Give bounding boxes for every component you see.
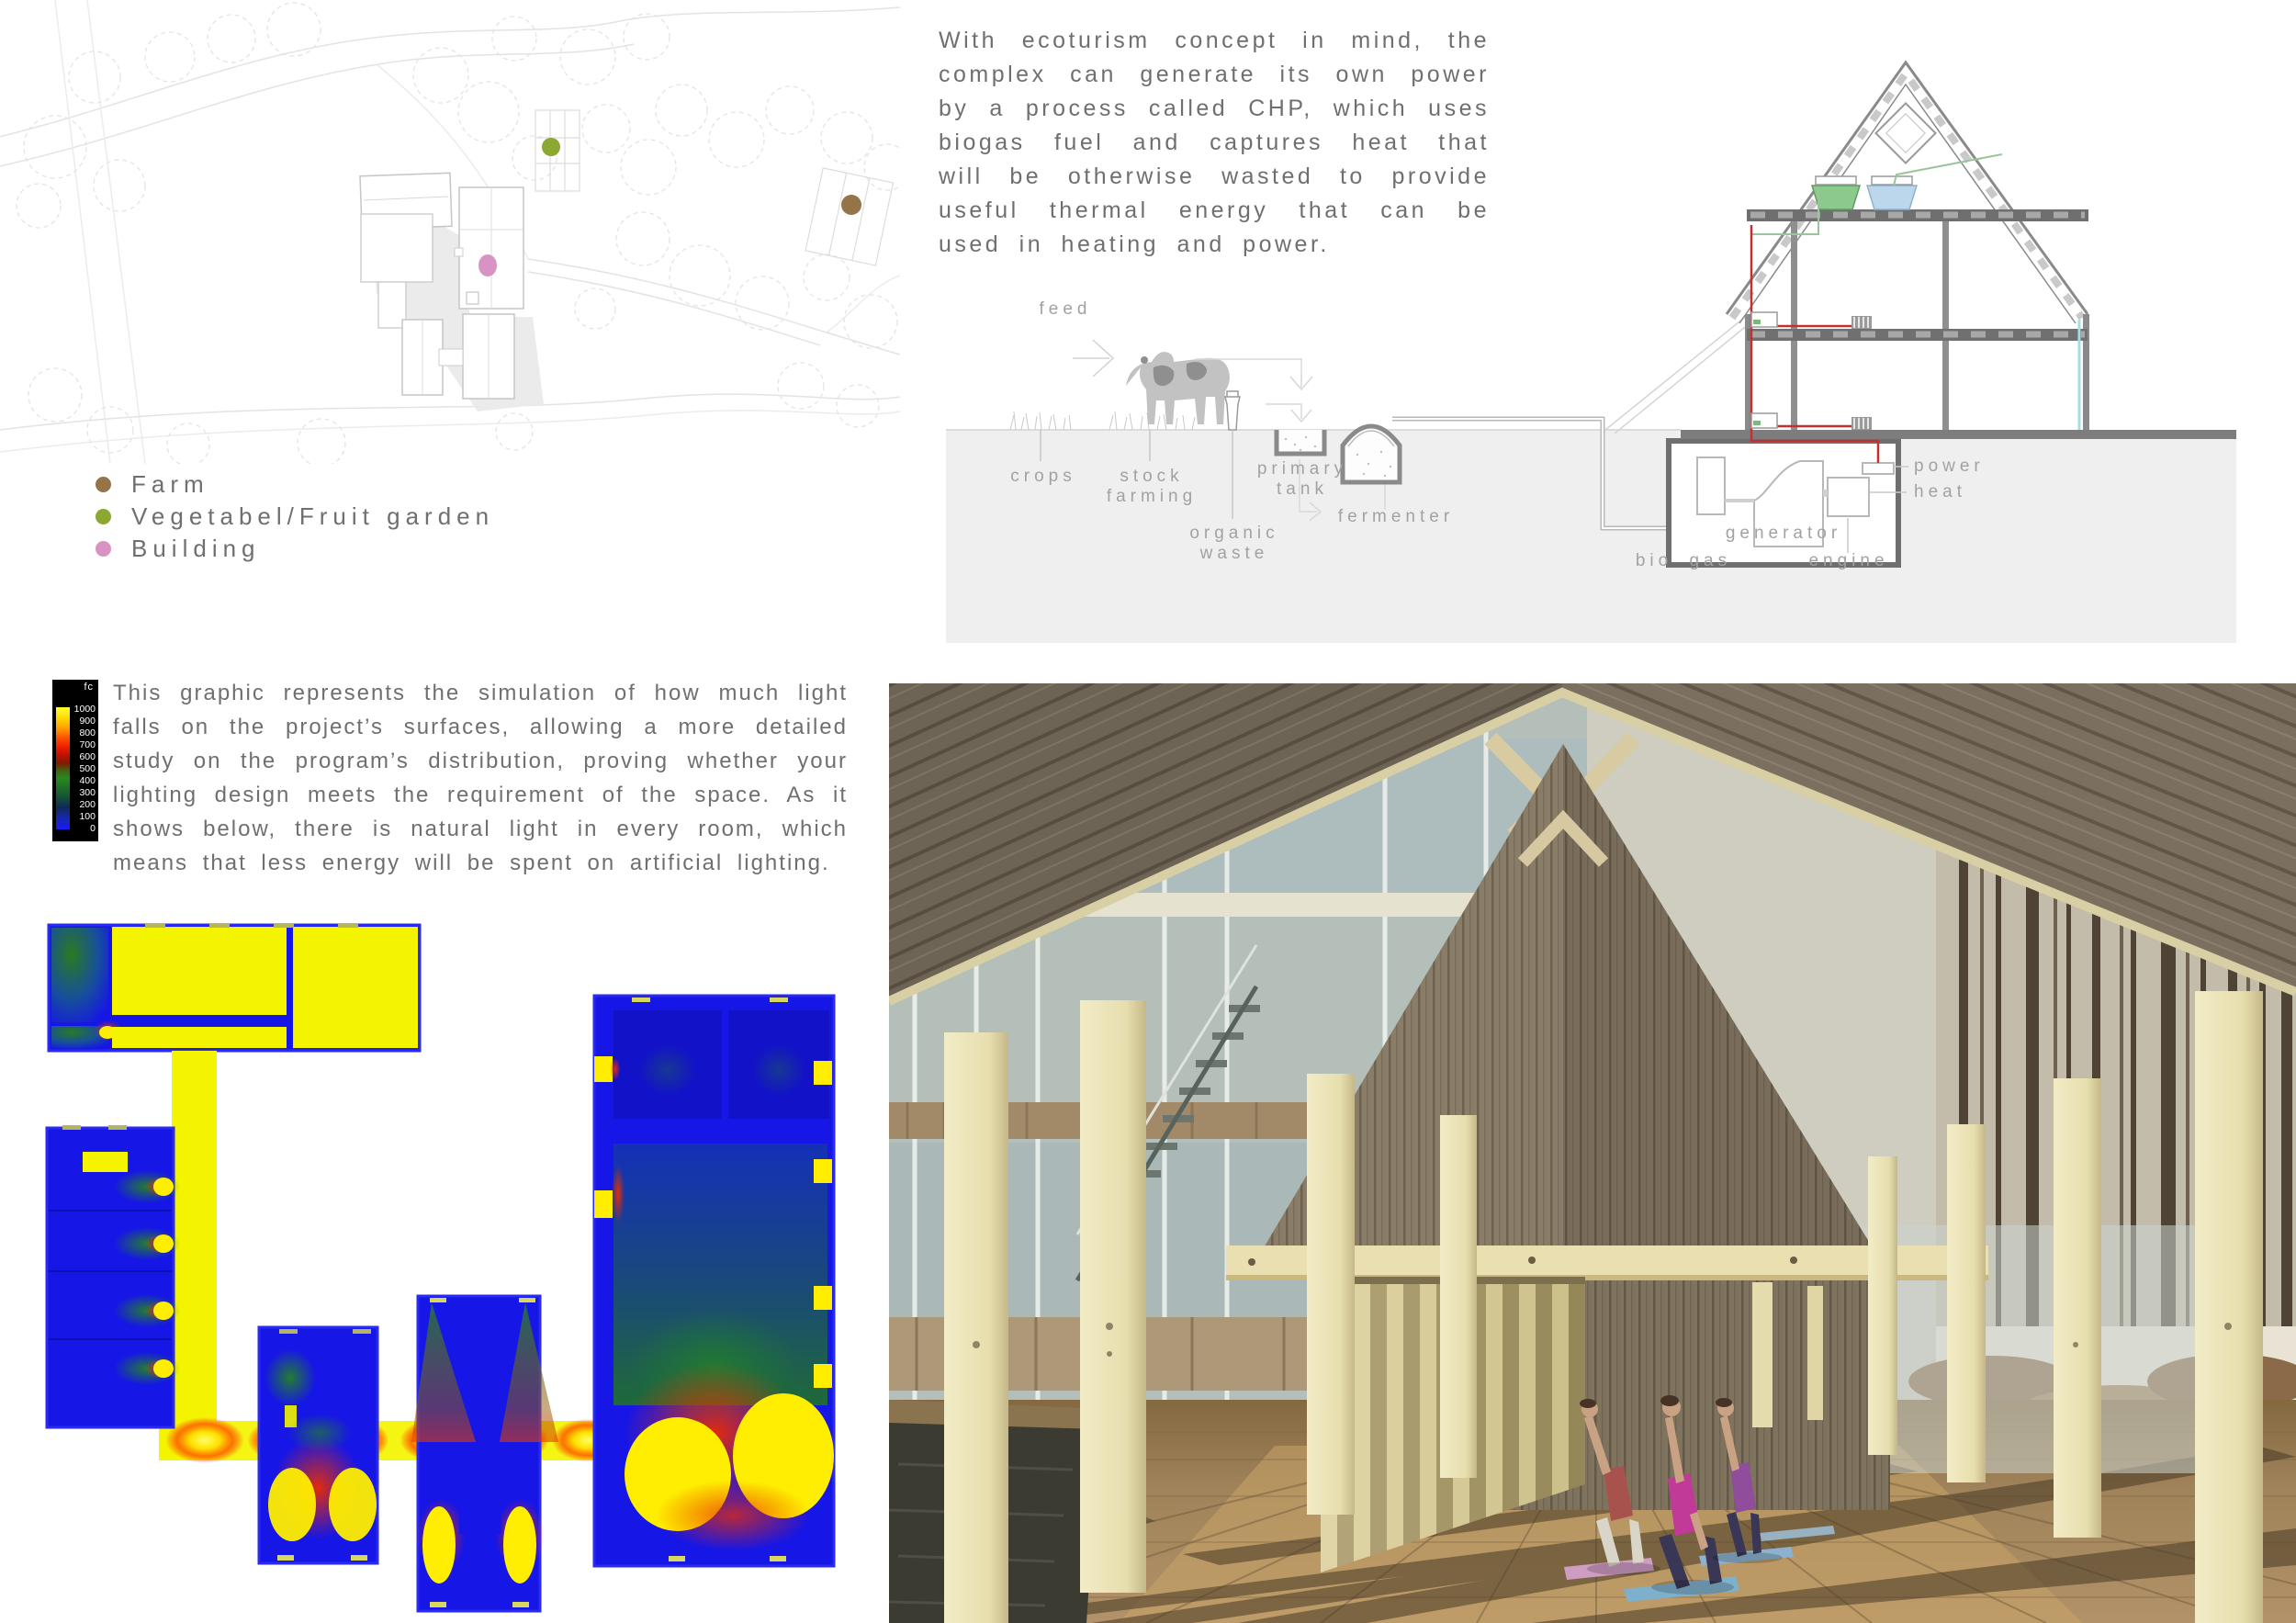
legend-row-garden: Vegetabel/Fruit garden bbox=[96, 501, 494, 533]
lean-to-glass bbox=[1605, 314, 1754, 434]
label-fermenter: fermenter bbox=[1338, 507, 1454, 527]
primary-tank-shape bbox=[1277, 430, 1324, 454]
timber-column bbox=[1440, 1115, 1477, 1478]
building-marker bbox=[478, 254, 497, 276]
building-dot-icon bbox=[96, 541, 111, 557]
timber-column bbox=[1807, 1286, 1823, 1420]
pavilion-render bbox=[889, 683, 2296, 1623]
label-engine: engine bbox=[1808, 551, 1888, 571]
site-buildings bbox=[360, 173, 544, 411]
basement bbox=[1669, 441, 1908, 565]
bio-gas-storage bbox=[1697, 457, 1725, 514]
heatmap-left-block bbox=[47, 1125, 195, 1427]
label-bio-gas: bio gas bbox=[1636, 551, 1731, 571]
timber-column bbox=[1307, 1074, 1355, 1515]
scale-tick: 100 bbox=[68, 812, 96, 821]
timber-column bbox=[2195, 991, 2263, 1623]
scale-tick: 700 bbox=[68, 740, 96, 750]
farm-dot-icon bbox=[96, 477, 111, 492]
engine-shape bbox=[1828, 478, 1869, 516]
chp-diagram-drawing bbox=[946, 37, 2241, 643]
power-unit-shape bbox=[1863, 463, 1894, 474]
presentation-board: Farm Vegetabel/Fruit garden Building Wit… bbox=[0, 0, 2296, 1623]
timber-column bbox=[944, 1032, 1008, 1623]
timber-column bbox=[1752, 1282, 1773, 1427]
legend-row-farm: Farm bbox=[96, 468, 494, 501]
scale-tick: 0 bbox=[68, 824, 96, 833]
scale-tick: 1000 bbox=[68, 704, 96, 714]
timber-column bbox=[1868, 1156, 1897, 1455]
site-plan-drawing bbox=[0, 0, 900, 464]
interior-column bbox=[1942, 220, 1949, 430]
organic-waste-bin bbox=[1225, 391, 1240, 430]
heatmap-third-block bbox=[406, 1296, 558, 1611]
heatmap-middle-block bbox=[253, 1327, 382, 1563]
label-feed: feed bbox=[1040, 299, 1092, 320]
footcandle-scale: fc 1000 900 800 700 600 500 400 300 200 … bbox=[52, 680, 98, 841]
site-plan-legend: Farm Vegetabel/Fruit garden Building bbox=[96, 468, 494, 565]
label-primary-tank: primary tank bbox=[1233, 459, 1371, 500]
garden-marker bbox=[542, 138, 560, 156]
legend-row-building: Building bbox=[96, 533, 494, 565]
timber-column bbox=[1947, 1124, 1986, 1482]
heatmap-top-block bbox=[49, 923, 420, 1051]
scale-tick: 300 bbox=[68, 788, 96, 797]
scale-tick: 900 bbox=[68, 716, 96, 726]
label-organic-waste: organic waste bbox=[1165, 524, 1303, 564]
scale-tick: 800 bbox=[68, 728, 96, 738]
legend-label: Vegetabel/Fruit garden bbox=[131, 502, 494, 531]
lighting-paragraph: This graphic represents the simulation o… bbox=[113, 676, 848, 880]
timber-column bbox=[1080, 1000, 1146, 1593]
blue-water-tank bbox=[1867, 186, 1917, 209]
feed-arrow-icon bbox=[1073, 340, 1113, 377]
label-heat: heat bbox=[1914, 482, 1966, 502]
label-crops: crops bbox=[1010, 467, 1075, 487]
scale-tick: 500 bbox=[68, 764, 96, 773]
heatmap-right-block bbox=[586, 996, 843, 1566]
chp-diagram: feed crops stock farming organic waste p… bbox=[946, 37, 2241, 643]
scale-unit: fc bbox=[84, 682, 94, 693]
house-section bbox=[1605, 62, 2236, 463]
legend-label: Building bbox=[131, 535, 261, 563]
garden-dot-icon bbox=[96, 509, 111, 524]
label-power: power bbox=[1914, 456, 1985, 477]
cow-illustration bbox=[1126, 352, 1230, 424]
ground-floor-slab bbox=[1681, 430, 2236, 439]
scale-tick: 600 bbox=[68, 752, 96, 761]
label-stock-farming: stock farming bbox=[1069, 467, 1234, 507]
scale-tick: 200 bbox=[68, 800, 96, 809]
label-generator: generator bbox=[1726, 524, 1841, 544]
legend-label: Farm bbox=[131, 470, 209, 499]
light-simulation-plan bbox=[44, 919, 852, 1623]
timber-column bbox=[2054, 1078, 2101, 1538]
scale-tick: 400 bbox=[68, 776, 96, 785]
site-farm-plot bbox=[805, 168, 893, 265]
farm-marker bbox=[841, 195, 861, 215]
